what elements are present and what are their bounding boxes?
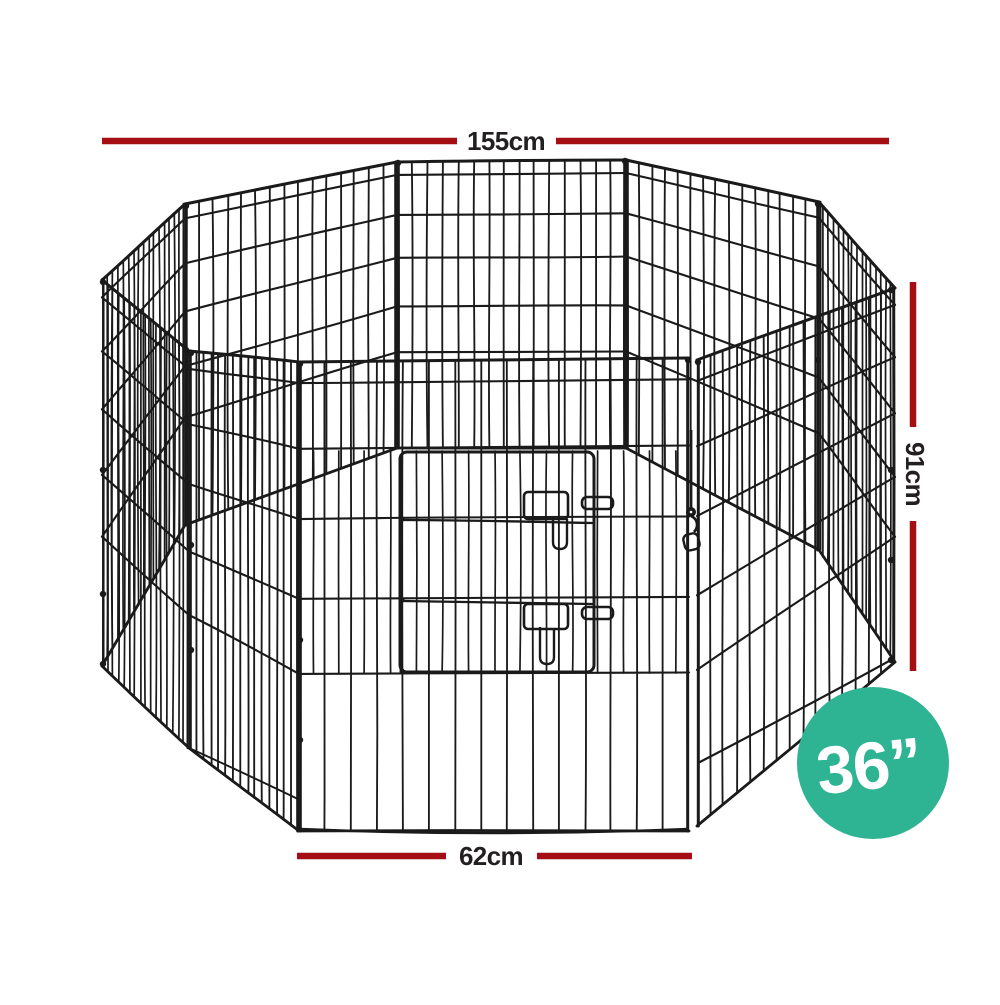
svg-text:155cm: 155cm <box>467 126 545 156</box>
svg-text:62cm: 62cm <box>459 841 523 871</box>
svg-text:91cm: 91cm <box>900 442 930 506</box>
svg-text:36”: 36” <box>813 724 925 810</box>
